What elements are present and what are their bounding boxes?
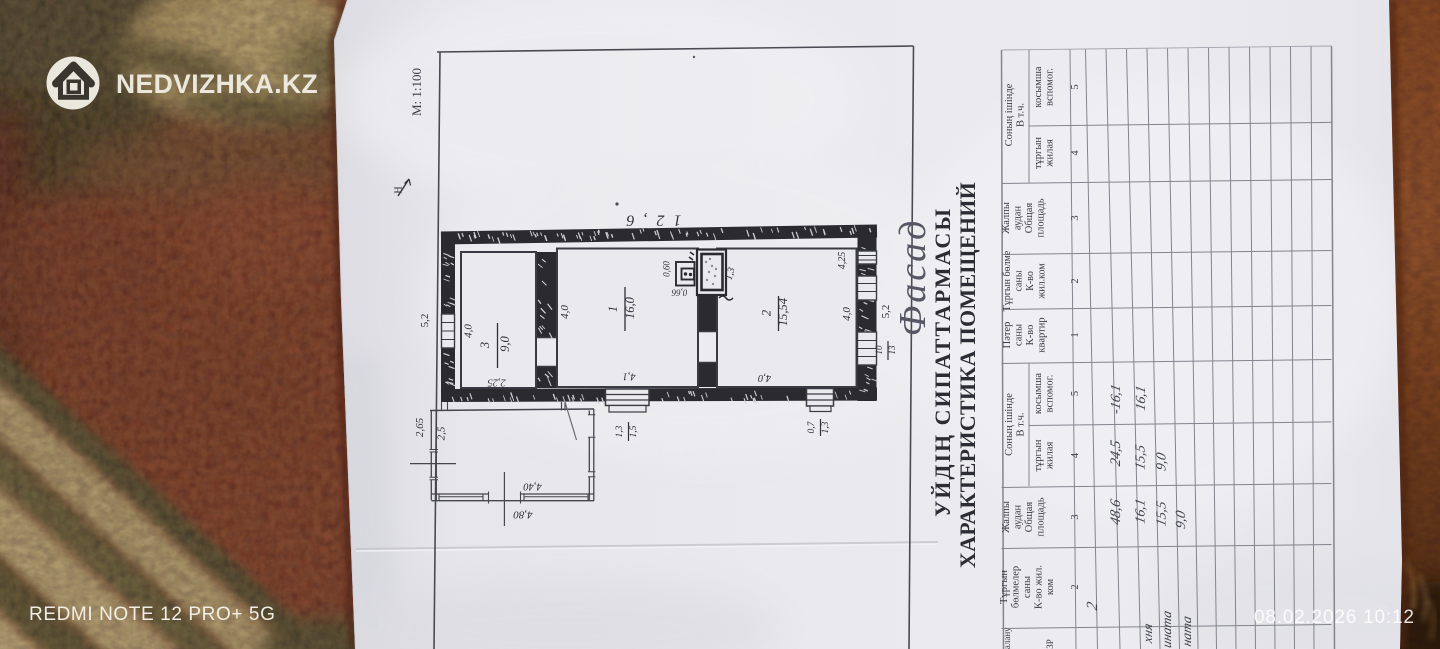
svg-text:5: 5 <box>1070 391 1081 396</box>
svg-text:2: 2 <box>760 310 774 316</box>
svg-text:саны: саны <box>1014 324 1025 346</box>
svg-text:16,1: 16,1 <box>1133 384 1149 412</box>
svg-text:площадь: площадь <box>1036 198 1047 237</box>
svg-text:5,2: 5,2 <box>419 314 431 328</box>
svg-text:Тұргын: Тұргын <box>999 570 1010 604</box>
svg-text:5,2: 5,2 <box>880 305 892 319</box>
svg-text:1,3: 1,3 <box>821 421 831 433</box>
svg-text:0,66: 0,66 <box>671 288 687 298</box>
svg-text:К-во жил.: К-во жил. <box>1034 565 1045 609</box>
svg-text:ната: ната <box>1179 614 1194 647</box>
svg-text:косымша: косымша <box>1033 373 1044 415</box>
svg-text:9,0: 9,0 <box>1173 509 1189 530</box>
svg-text:Н: Н <box>394 186 405 193</box>
svg-text:квартир: квартир <box>1037 317 1048 352</box>
svg-text:4,0: 4,0 <box>757 372 771 383</box>
svg-text:вспомог.: вспомог. <box>1045 68 1056 106</box>
svg-text:2: 2 <box>1070 278 1081 283</box>
svg-text:вспомог.: вспомог. <box>1045 375 1056 413</box>
svg-text:площадь: площадь <box>1036 497 1047 536</box>
svg-text:ХАРАКТЕРИСТИКА ПОМЕЩЕНИЙ: ХАРАКТЕРИСТИКА ПОМЕЩЕНИЙ <box>955 182 980 568</box>
svg-text:Соның ішінде: Соның ішінде <box>1004 393 1015 456</box>
svg-text:2: 2 <box>1070 584 1081 589</box>
svg-text:15,54: 15,54 <box>776 298 790 326</box>
svg-text:1,5: 1,5 <box>629 425 639 437</box>
svg-text:ком: ком <box>1045 579 1056 596</box>
svg-text:К-во: К-во <box>1025 325 1036 346</box>
svg-text:аудан: аудан <box>1013 205 1024 230</box>
svg-text:Общая: Общая <box>1024 203 1035 234</box>
svg-text:24,5: 24,5 <box>1108 439 1124 468</box>
svg-text:тұргын: тұргын <box>1033 439 1044 471</box>
svg-text:16,0: 16,0 <box>623 296 637 319</box>
svg-text:12,6: 12,6 <box>618 212 682 229</box>
svg-text:Жалпы: Жалпы <box>1001 202 1012 234</box>
svg-text:2,65: 2,65 <box>414 417 426 437</box>
svg-text:Тұргын бөлме: Тұргын бөлме <box>1002 250 1013 311</box>
svg-text:аудан: аудан <box>1013 504 1024 529</box>
svg-text:4: 4 <box>1070 452 1081 458</box>
svg-text:15,5: 15,5 <box>1133 443 1149 471</box>
svg-text:5: 5 <box>1070 84 1081 89</box>
svg-text:саны: саны <box>1022 576 1033 598</box>
svg-text:йдалану: йдалану <box>1002 627 1012 649</box>
svg-text:косымша: косымша <box>1033 66 1044 108</box>
svg-text:1,3: 1,3 <box>615 425 625 437</box>
svg-text:ЗР: ЗР <box>1045 639 1055 649</box>
svg-text:NEDVIZHKA.KZ: NEDVIZHKA.KZ <box>116 69 318 99</box>
svg-text:9,0: 9,0 <box>498 335 512 351</box>
svg-text:УЙДІҢ СИПАТТАРМАСЫ: УЙДІҢ СИПАТТАРМАСЫ <box>930 207 955 517</box>
svg-text:хня: хня <box>1140 622 1155 645</box>
svg-text:0,7: 0,7 <box>807 420 817 433</box>
svg-text:4,0: 4,0 <box>463 324 475 338</box>
svg-text:Пәтер: Пәтер <box>1002 322 1013 349</box>
svg-text:2,25: 2,25 <box>487 377 505 388</box>
svg-text:48,6: 48,6 <box>1108 497 1124 526</box>
svg-text:саны: саны <box>1014 270 1025 291</box>
svg-text:Жалпы: Жалпы <box>1001 501 1012 533</box>
svg-text:К-во: К-во <box>1025 271 1036 291</box>
svg-text:3: 3 <box>1070 215 1081 220</box>
svg-text:15,5: 15,5 <box>1154 500 1170 528</box>
svg-text:В т.ч.: В т.ч. <box>1016 413 1027 437</box>
svg-text:16,1: 16,1 <box>1133 497 1149 525</box>
svg-text:1: 1 <box>1070 332 1081 337</box>
svg-text:08.02.2026 10:12: 08.02.2026 10:12 <box>1254 607 1415 628</box>
svg-text:М: 1:100: М: 1:100 <box>409 68 424 116</box>
svg-text:жилая: жилая <box>1045 442 1056 471</box>
svg-text:тұргын: тұргын <box>1033 137 1044 169</box>
svg-text:2,5: 2,5 <box>436 426 448 440</box>
svg-text:3: 3 <box>1070 514 1081 519</box>
svg-text:жил.ком: жил.ком <box>1037 263 1048 300</box>
svg-text:ината: ината <box>1159 609 1174 649</box>
svg-text:13: 13 <box>887 345 897 355</box>
svg-text:4,25: 4,25 <box>837 252 848 270</box>
svg-text:бөлмелер: бөлмелер <box>1011 566 1022 608</box>
svg-text:жилая: жилая <box>1045 139 1056 168</box>
svg-text:4,80: 4,80 <box>513 509 533 521</box>
svg-text:REDMI NOTE 12 PRO+ 5G: REDMI NOTE 12 PRO+ 5G <box>29 604 275 625</box>
svg-text:Фасад: Фасад <box>892 218 934 337</box>
svg-text:Соның ішінде: Соның ішінде <box>1004 83 1015 146</box>
svg-text:4,0: 4,0 <box>841 307 853 321</box>
svg-text:4,0: 4,0 <box>559 305 571 319</box>
svg-text:10: 10 <box>874 345 884 355</box>
svg-text:4: 4 <box>1070 150 1081 156</box>
svg-text:4,1: 4,1 <box>622 371 635 382</box>
svg-text:В т.ч.: В т.ч. <box>1016 103 1027 127</box>
svg-text:-16,1: -16,1 <box>1108 383 1124 416</box>
svg-text:1: 1 <box>606 306 620 312</box>
svg-text:9,0: 9,0 <box>1154 451 1170 472</box>
svg-text:4,40: 4,40 <box>523 481 542 492</box>
svg-text:0,60: 0,60 <box>662 261 672 277</box>
svg-text:Общая: Общая <box>1024 502 1035 533</box>
svg-text:3: 3 <box>478 342 492 349</box>
